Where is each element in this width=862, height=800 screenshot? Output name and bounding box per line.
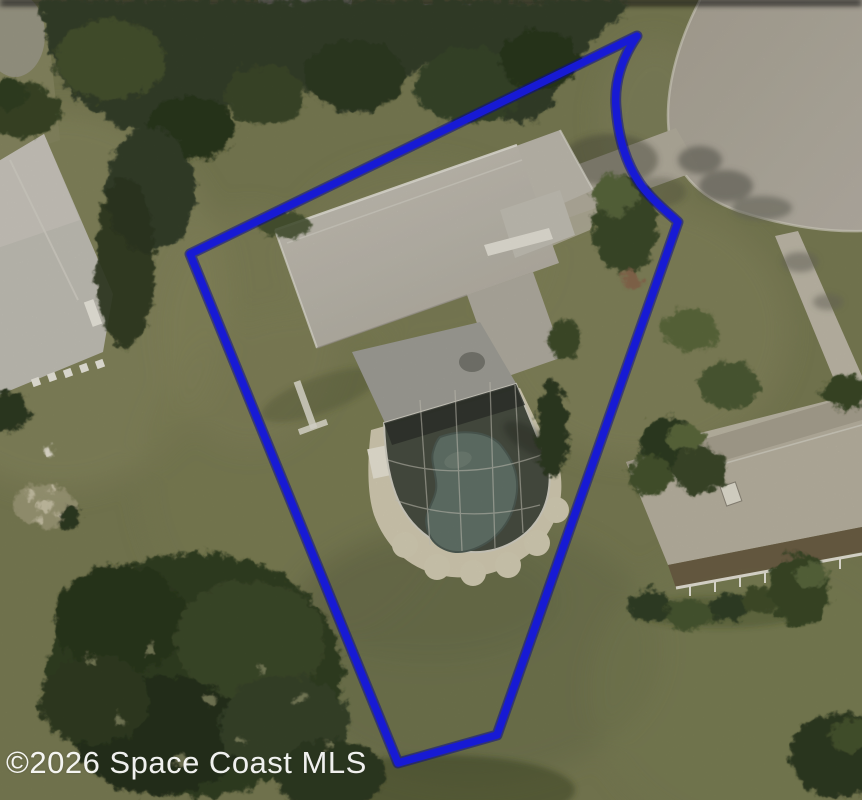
photo-grain bbox=[0, 0, 862, 800]
aerial-parcel-view: ©2026 Space Coast MLS bbox=[0, 0, 862, 800]
watermark: ©2026 Space Coast MLS bbox=[6, 745, 367, 781]
aerial-photo bbox=[0, 0, 862, 800]
